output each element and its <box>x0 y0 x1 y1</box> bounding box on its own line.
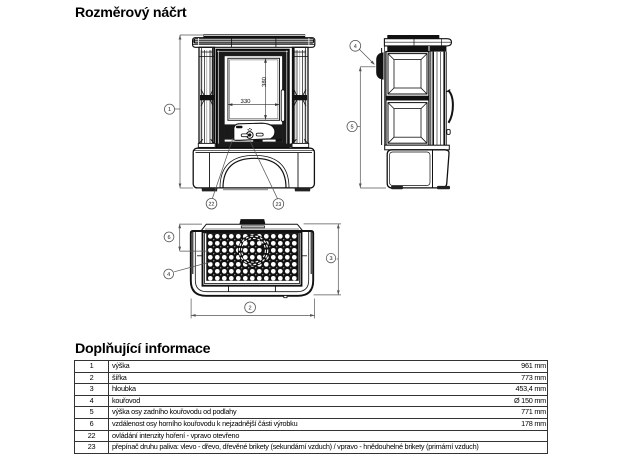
svg-text:330: 330 <box>240 98 251 105</box>
svg-text:22: 22 <box>209 202 215 208</box>
svg-text:23: 23 <box>275 202 281 208</box>
svg-text:4: 4 <box>354 44 357 50</box>
svg-text:380: 380 <box>261 76 268 87</box>
svg-text:2: 2 <box>249 306 252 312</box>
svg-text:4: 4 <box>167 272 170 278</box>
svg-text:1: 1 <box>168 107 171 113</box>
svg-text:6: 6 <box>167 235 170 241</box>
svg-text:5: 5 <box>351 125 354 131</box>
svg-text:3: 3 <box>329 256 332 262</box>
